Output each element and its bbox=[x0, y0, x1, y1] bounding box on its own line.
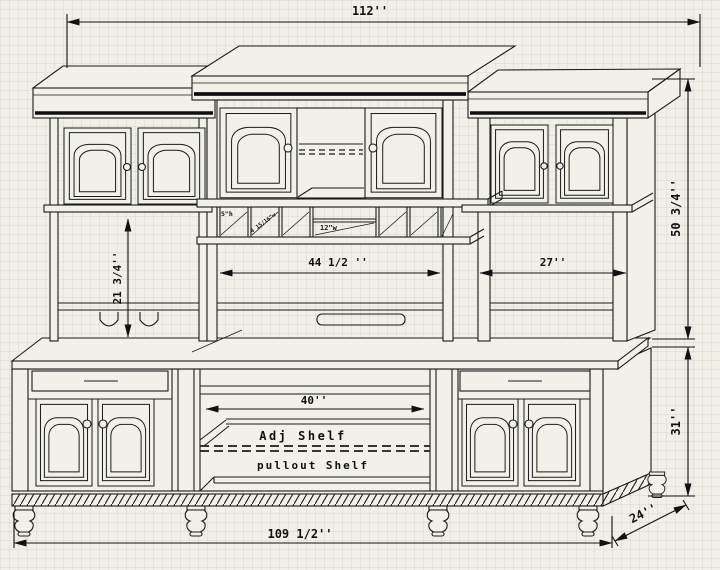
pullout-shelf-label: pullout Shelf bbox=[257, 459, 369, 472]
corbel-right bbox=[140, 312, 158, 326]
hutch-center-stile-left bbox=[207, 100, 217, 341]
dim-overall-width-label: 112'' bbox=[352, 4, 388, 18]
base-right-door-1 bbox=[462, 399, 518, 486]
hutch-center-niche bbox=[297, 108, 365, 198]
hutch-right-shelf-board bbox=[462, 205, 632, 212]
hutch-left-shelf-board bbox=[44, 205, 212, 212]
hutch-interior-details bbox=[58, 303, 613, 326]
base-left-door-1 bbox=[36, 399, 92, 486]
dim-base-height-label: 31'' bbox=[669, 407, 683, 436]
hutch-right-door-1 bbox=[491, 125, 548, 203]
dim-hutch-height-label: 50 3/4'' bbox=[669, 179, 683, 237]
crown-moldings bbox=[33, 46, 680, 118]
wine-rack: 5"h 4 15/16"w 12"w bbox=[197, 207, 484, 244]
base-right-side-panel bbox=[603, 348, 651, 494]
back-panel-cutout bbox=[317, 314, 405, 325]
bun-foot-2 bbox=[185, 506, 207, 536]
bun-foot-3 bbox=[427, 506, 449, 536]
rope-molding-front bbox=[12, 494, 603, 506]
counter-top bbox=[12, 330, 650, 369]
center-crown bbox=[192, 46, 515, 100]
base-left-door-2 bbox=[98, 399, 154, 486]
drawing-canvas: 5"h 4 15/16"w 12"w 112'' bbox=[0, 0, 720, 570]
wine-center-slot-width-label: 12"w bbox=[320, 224, 338, 232]
dim-center-opening-width-label: 44 1/2 '' bbox=[308, 256, 368, 269]
bun-foot-1 bbox=[13, 506, 35, 536]
hutch-center-door-1 bbox=[220, 108, 297, 198]
hutch-center-stile-right bbox=[443, 100, 453, 341]
counter-front-edge bbox=[12, 361, 618, 369]
dim-base-center-opening-width-label: 40'' bbox=[301, 394, 328, 407]
base-right-door-2 bbox=[524, 399, 580, 486]
hutch-left-stile-outer bbox=[50, 118, 58, 341]
adjustable-shelf-label: Adj Shelf bbox=[259, 429, 347, 443]
corbel-left bbox=[100, 312, 118, 326]
wine-rack-bottom-board bbox=[197, 237, 470, 244]
wine-slot-width-label: 4 15/16"w bbox=[250, 212, 278, 235]
hutch-left-door-2 bbox=[138, 128, 205, 204]
cabinet-drawing: 5"h 4 15/16"w 12"w 112'' bbox=[0, 0, 720, 570]
wine-slot-height-label: 5"h bbox=[221, 210, 233, 218]
hutch-right-stile-outer bbox=[613, 118, 627, 341]
hutch-right-door-2 bbox=[556, 125, 613, 203]
hutch-right-side-panel bbox=[627, 97, 655, 341]
hutch-center-shelf-board bbox=[197, 199, 488, 207]
right-crown bbox=[468, 69, 680, 118]
dim-right-opening-width-label: 27'' bbox=[540, 256, 567, 269]
dim-left-opening-height-label: 21 3/4'' bbox=[111, 252, 124, 305]
hutch-left-door-1 bbox=[64, 128, 131, 204]
dim-base-depth-label: 24'' bbox=[627, 501, 659, 526]
bun-foot-4 bbox=[577, 506, 599, 536]
wine-rack-center-shelf bbox=[313, 219, 376, 222]
dim-base-width-label: 109 1/2'' bbox=[267, 527, 332, 541]
counter-surface bbox=[12, 338, 650, 361]
hutch-center-door-2 bbox=[365, 108, 442, 198]
